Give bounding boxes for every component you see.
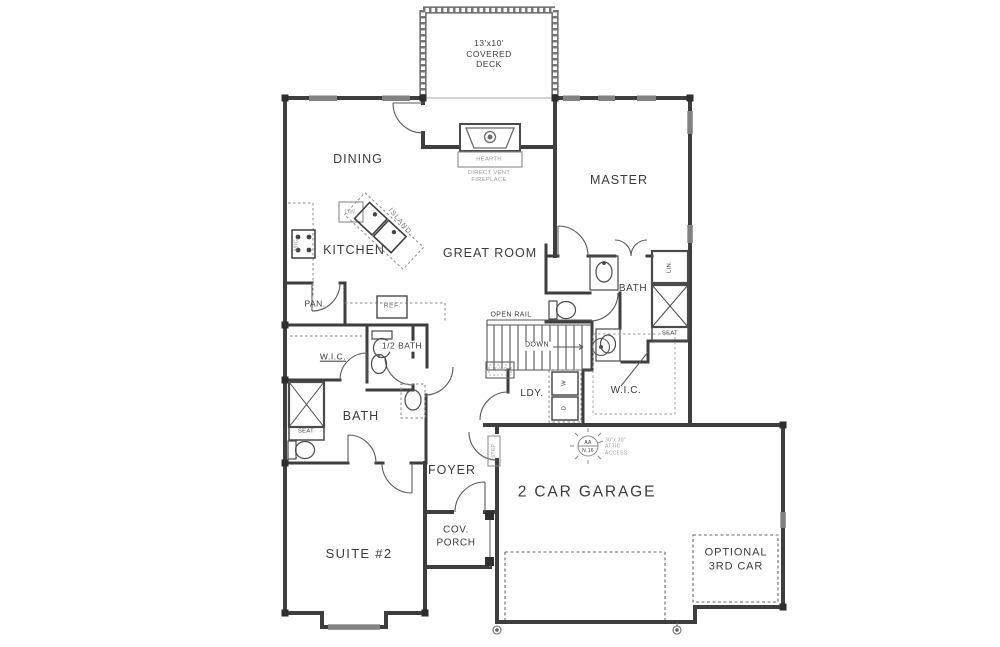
room-label-half-bath: 1/2 BATH	[380, 341, 424, 352]
room-label-foyer: FOYER	[428, 463, 476, 479]
room-label-wic-master: W.I.C.	[611, 385, 642, 398]
fireplace-label: DIRECT VENT FIREPLACE	[468, 170, 510, 184]
room-label-garage: 2 CAR GARAGE	[518, 482, 657, 501]
seat-suite-label: SEAT	[298, 428, 314, 435]
room-label-bath-left: BATH	[343, 409, 379, 425]
floorplan-page: 13'x10' COVERED DECK HEARTH DIRECT VENT …	[0, 0, 1000, 647]
room-label-kitchen: KITCHEN	[323, 243, 385, 259]
attic-symbol-bottom-label: N.16	[582, 448, 594, 454]
seat-master-label: SEAT	[662, 330, 678, 337]
room-label-dining: DINING	[333, 152, 383, 168]
floorplan-drawing	[0, 0, 1000, 647]
washer-dryer	[549, 370, 581, 422]
linen-label: LIN.	[666, 261, 673, 273]
room-label-optional-3rd-car: OPTIONAL 3RD CAR	[705, 546, 768, 574]
room-label-suite-2: SUITE #2	[326, 546, 393, 562]
attic-symbol-top-label: AA	[584, 440, 591, 446]
attic-access-note: 30"x 30" ATTIC ACCESS	[605, 438, 627, 457]
garage-door-outline	[505, 552, 665, 620]
porch-post	[485, 511, 494, 520]
room-label-great-room: GREAT ROOM	[443, 246, 537, 262]
suite-toilet-bowl	[296, 442, 315, 459]
dryer-label: D	[561, 406, 568, 411]
master-toilet-bowl	[557, 302, 576, 319]
refrigerator-label: REF.	[384, 303, 401, 312]
down-label: DOWN	[523, 342, 551, 351]
room-label-cov-porch: COV. PORCH	[436, 525, 475, 550]
room-label-wic-left: W.I.C.	[320, 352, 346, 363]
hearth-label: HEARTH	[476, 156, 502, 163]
step-label: STEP	[491, 444, 497, 458]
hvac-label: HVAC	[493, 367, 508, 373]
dishwasher-label: DW.	[345, 209, 357, 216]
half-bath-toilet-tank	[372, 331, 392, 339]
master-wic-shelves	[593, 334, 675, 414]
porch-post	[485, 557, 494, 566]
microwave-label: MIC.	[293, 237, 300, 251]
open-rail-label: OPEN RAIL	[490, 312, 531, 321]
washer-label: W	[561, 380, 568, 386]
room-label-bath-master: BATH	[619, 283, 647, 296]
master-toilet-tank	[549, 301, 557, 319]
room-label-pantry: PAN.	[304, 299, 325, 310]
suite-toilet-tank	[288, 441, 296, 459]
room-label-laundry: LDY.	[520, 388, 543, 401]
room-label-master: MASTER	[590, 173, 648, 189]
room-label-covered-deck: 13'x10' COVERED DECK	[466, 38, 512, 70]
